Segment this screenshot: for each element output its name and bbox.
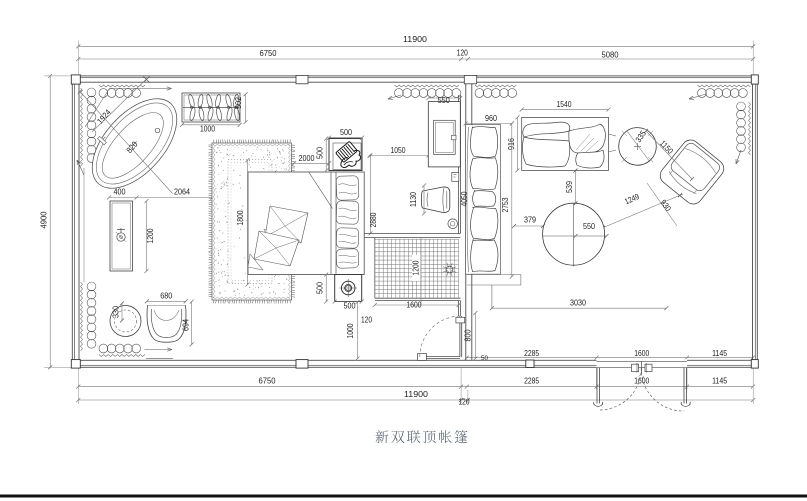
svg-text:1130: 1130 [409, 192, 418, 207]
svg-text:680: 680 [160, 291, 172, 300]
svg-text:1200: 1200 [412, 260, 421, 275]
svg-text:2285: 2285 [524, 377, 539, 386]
svg-text:2753: 2753 [501, 197, 510, 212]
svg-text:400: 400 [114, 188, 126, 197]
svg-text:500: 500 [316, 282, 325, 294]
svg-text:500: 500 [340, 128, 352, 137]
svg-text:960: 960 [485, 114, 497, 123]
svg-text:2064: 2064 [174, 188, 190, 197]
svg-text:539: 539 [565, 181, 574, 193]
svg-text:11900: 11900 [403, 35, 427, 44]
svg-text:1600: 1600 [634, 349, 649, 358]
svg-text:1800: 1800 [236, 210, 245, 225]
svg-text:694: 694 [181, 319, 190, 331]
svg-text:6750: 6750 [260, 49, 277, 58]
svg-text:2000: 2000 [299, 154, 315, 163]
svg-text:1145: 1145 [712, 349, 727, 358]
svg-text:1050: 1050 [391, 146, 406, 155]
svg-text:120: 120 [457, 49, 468, 58]
svg-text:1200: 1200 [146, 228, 155, 243]
svg-text:4900: 4900 [40, 211, 49, 228]
svg-text:3030: 3030 [570, 299, 586, 308]
svg-text:120: 120 [361, 316, 372, 325]
svg-text:550: 550 [583, 222, 595, 231]
svg-text:500: 500 [316, 147, 325, 159]
svg-text:500: 500 [344, 302, 356, 311]
svg-text:916: 916 [507, 138, 516, 150]
svg-text:1000: 1000 [200, 125, 215, 134]
svg-text:2880: 2880 [369, 212, 378, 227]
svg-text:2285: 2285 [524, 349, 539, 358]
svg-text:1145: 1145 [712, 377, 727, 386]
svg-text:800: 800 [464, 329, 473, 341]
svg-text:330: 330 [111, 306, 120, 318]
svg-text:1600: 1600 [407, 300, 422, 309]
svg-text:550: 550 [438, 96, 450, 105]
svg-text:11900: 11900 [404, 390, 428, 399]
svg-text:5080: 5080 [602, 51, 619, 60]
svg-text:1540: 1540 [557, 100, 572, 109]
svg-text:4050: 4050 [460, 191, 469, 206]
svg-text:379: 379 [524, 215, 536, 224]
svg-text:50: 50 [481, 355, 488, 362]
svg-text:1000: 1000 [346, 323, 355, 338]
svg-text:502: 502 [234, 97, 243, 109]
svg-text:6750: 6750 [259, 377, 276, 386]
